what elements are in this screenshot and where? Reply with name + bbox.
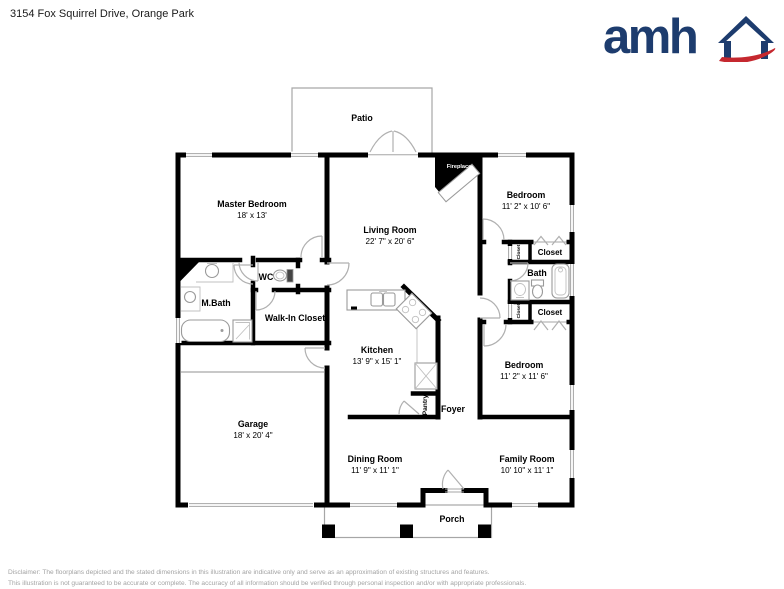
walkin-closet-door [256, 291, 275, 310]
room-label-porch: Porch [440, 514, 465, 524]
room-dims-garage: 18' x 20' 4" [233, 431, 272, 440]
kitchen-sink [384, 293, 396, 306]
room-label-master-bedroom: Master Bedroom [217, 199, 287, 209]
room-label-bedroom-top: Bedroom [507, 190, 546, 200]
room-label-walk-in-closet: Walk-In Closet [265, 313, 325, 323]
room-label-foyer: Foyer [441, 404, 466, 414]
front-door [442, 470, 464, 489]
pantry-door [399, 401, 419, 414]
room-label-wc: WC [259, 272, 274, 282]
porch-deck [322, 505, 492, 538]
room-label-master-bath: M.Bath [201, 298, 230, 308]
fireplace: Fireplace [435, 158, 481, 202]
patio-french-doors [370, 131, 416, 152]
room-dims-master-bedroom: 18' x 13' [237, 211, 267, 220]
room-label-closet-bottom-small: Closet [516, 303, 522, 318]
room-dims-kitchen: 13' 9" x 15' 1" [353, 357, 402, 366]
room-dims-bedroom-top: 11' 2" x 10' 6" [502, 202, 550, 211]
porch-pillar [400, 525, 413, 539]
hall-to-suite-door [327, 263, 349, 285]
hall-entry-door [480, 298, 500, 318]
room-label-pantry: Pantry [422, 394, 429, 415]
mbath-sink [185, 292, 196, 303]
master-bedroom-door [301, 236, 322, 257]
wc-toilet-tank [287, 270, 293, 283]
fireplace-label: Fireplace [447, 164, 472, 170]
bedroom-bottom-door [484, 324, 506, 346]
room-dims-family-room: 10' 10" x 11' 1" [501, 466, 554, 475]
mbath-corner [181, 261, 201, 281]
bath-toilet [533, 285, 543, 298]
porch-pillar [478, 525, 491, 539]
mbath-sink [206, 265, 219, 278]
room-label-dining-room: Dining Room [348, 454, 403, 464]
room-label-living-room: Living Room [363, 225, 416, 235]
room-dims-bedroom-bottom: 11' 2" x 11' 6" [500, 372, 548, 381]
room-dims-dining-room: 11' 9" x 11' 1" [351, 466, 399, 475]
kitchen-sink [371, 293, 383, 306]
room-label-family-room: Family Room [499, 454, 554, 464]
floor-plan: Fireplace [0, 0, 784, 588]
disclaimer-line-1: Disclaimer: The floorplans depicted and … [8, 568, 489, 578]
room-label-patio: Patio [351, 113, 373, 123]
bath-door [510, 263, 528, 281]
porch-pillar [322, 525, 335, 539]
garage-entry-door [305, 348, 325, 368]
room-label-bedroom-bottom: Bedroom [505, 360, 544, 370]
room-label-garage: Garage [238, 419, 268, 429]
room-dims-living-room: 22' 7" x 20' 6" [366, 237, 415, 246]
room-label-kitchen: Kitchen [361, 345, 393, 355]
room-label-closet-bottom: Closet [538, 308, 563, 317]
room-label-bath: Bath [527, 268, 547, 278]
room-label-closet-top-small: Closet [516, 244, 522, 259]
bedroom-top-door [483, 219, 504, 240]
room-label-closet-top: Closet [538, 248, 563, 257]
